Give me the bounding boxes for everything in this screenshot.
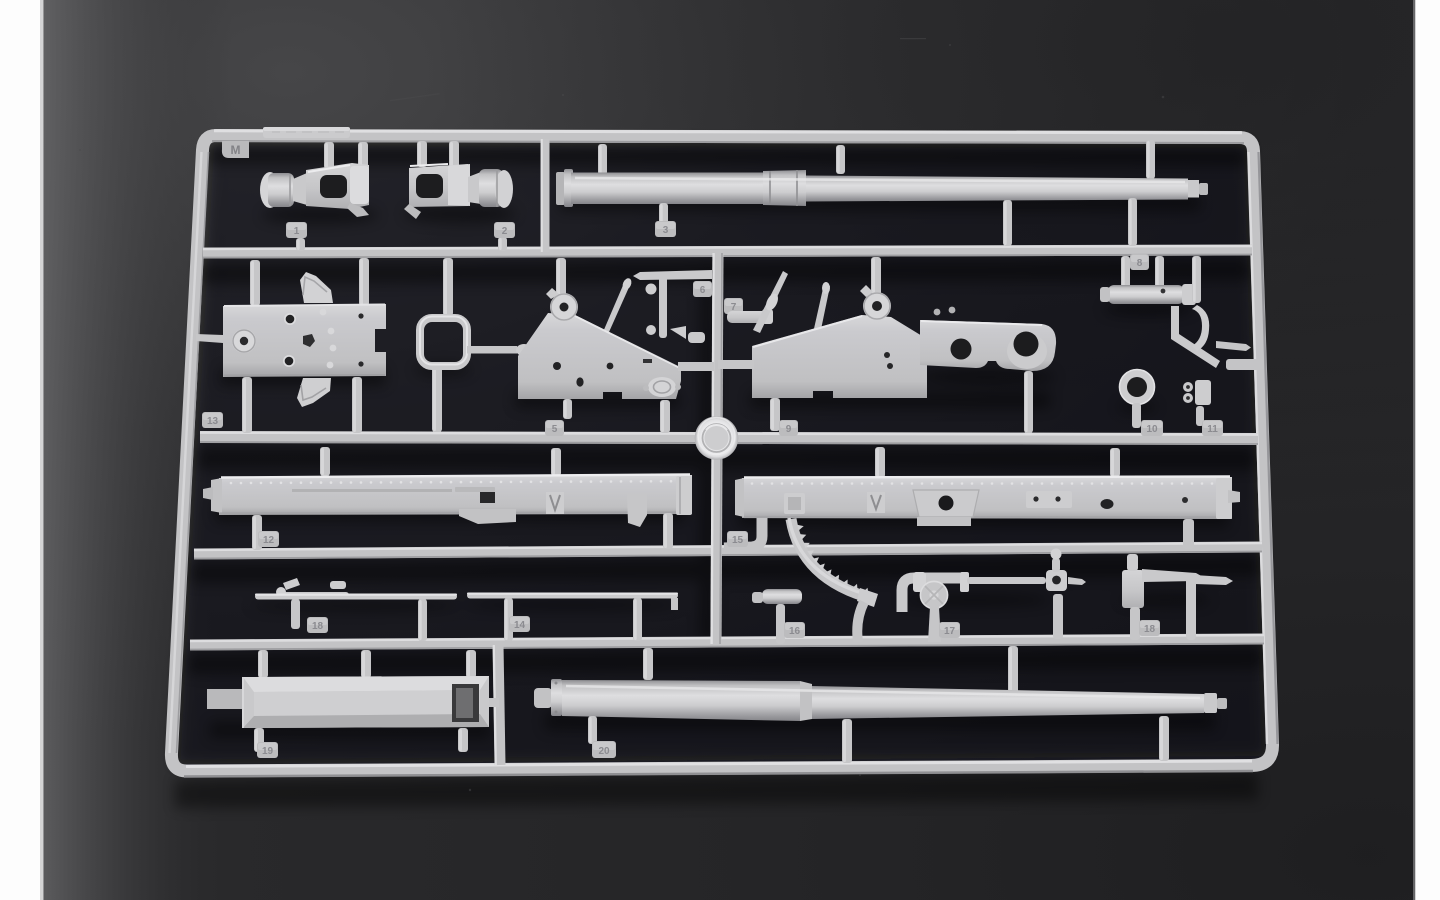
svg-text:8: 8 <box>1137 258 1143 269</box>
svg-text:6: 6 <box>700 285 706 296</box>
svg-text:11: 11 <box>1207 424 1218 435</box>
svg-text:13: 13 <box>207 416 219 427</box>
svg-text:3: 3 <box>663 225 669 236</box>
svg-text:10: 10 <box>1146 424 1158 435</box>
svg-text:1: 1 <box>294 226 300 237</box>
svg-text:20: 20 <box>598 746 610 757</box>
svg-text:15: 15 <box>732 535 744 546</box>
svg-text:5: 5 <box>552 424 558 435</box>
svg-text:12: 12 <box>263 535 275 546</box>
svg-text:M: M <box>231 143 241 157</box>
svg-text:9: 9 <box>786 424 792 435</box>
svg-text:17: 17 <box>944 626 956 637</box>
svg-text:19: 19 <box>262 746 274 757</box>
svg-text:14: 14 <box>514 620 526 631</box>
svg-text:18: 18 <box>1144 624 1156 635</box>
svg-text:2: 2 <box>502 226 508 237</box>
svg-text:16: 16 <box>789 626 801 637</box>
svg-text:18: 18 <box>312 621 324 632</box>
